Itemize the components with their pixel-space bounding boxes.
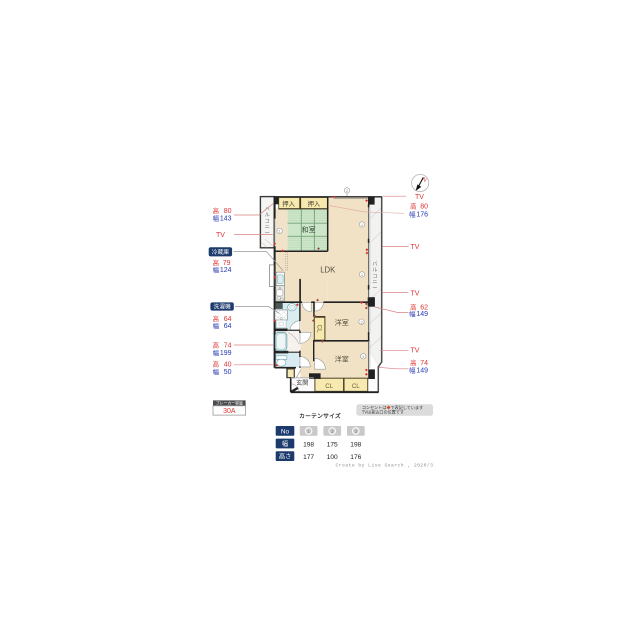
svg-text:176: 176 [416,212,428,219]
svg-text:幅: 幅 [409,366,416,375]
svg-text:TV: TV [415,194,424,201]
svg-text:TV: TV [411,348,420,355]
svg-text:幅: 幅 [409,210,416,219]
svg-text:高: 高 [213,206,219,215]
svg-text:高: 高 [213,360,219,369]
svg-text:玄関: 玄関 [296,379,308,387]
svg-text:TV: TV [411,290,420,297]
svg-text:高さ: 高さ [279,453,291,461]
svg-text:Create by Live Search , 2020/3: Create by Live Search , 2020/3 [336,463,434,469]
svg-text:1: 1 [307,429,310,435]
svg-text:和室: 和室 [302,225,316,234]
svg-text:ニ: ニ [372,279,377,286]
svg-text:TV: TV [411,244,420,251]
svg-text:押入: 押入 [282,199,295,208]
svg-text:幅: 幅 [213,321,220,330]
svg-text:ブレーカー容量: ブレーカー容量 [216,401,243,406]
svg-text:幅: 幅 [409,309,416,318]
svg-text:高: 高 [213,314,219,323]
svg-text:幅: 幅 [213,214,220,223]
svg-text:79: 79 [223,260,231,267]
svg-text:74: 74 [224,343,232,350]
svg-text:LDK: LDK [320,266,336,275]
svg-text:バ: バ [372,261,377,268]
svg-text:2: 2 [331,429,334,435]
svg-text:幅: 幅 [282,440,288,448]
svg-text:洋室: 洋室 [335,354,349,363]
svg-text:199: 199 [220,350,232,357]
svg-text:幅: 幅 [213,265,220,274]
svg-text:64: 64 [224,316,232,323]
svg-text:3: 3 [354,429,357,435]
svg-text:幅: 幅 [213,367,220,376]
svg-text:高: 高 [410,302,416,311]
svg-text:124: 124 [220,267,232,274]
svg-text:高: 高 [213,341,219,350]
svg-text:幅: 幅 [213,348,220,357]
svg-text:洋室: 洋室 [335,318,349,327]
svg-text:ー: ー [372,286,377,292]
svg-text:No: No [281,428,290,435]
svg-text:TVは差込口の位置です: TVは差込口の位置です [362,409,404,415]
svg-text:高: 高 [410,358,416,367]
svg-text:ニ: ニ [265,224,270,231]
svg-text:176: 176 [350,454,361,461]
svg-text:コ: コ [265,218,270,225]
svg-text:143: 143 [220,216,232,223]
svg-text:押入: 押入 [308,199,321,208]
svg-text:CL: CL [325,383,333,390]
svg-text:40: 40 [224,362,232,369]
svg-text:80: 80 [420,204,428,211]
svg-text:50: 50 [224,369,232,376]
svg-text:100: 100 [327,454,338,461]
svg-text:TV: TV [216,232,225,239]
svg-text:175: 175 [327,441,338,448]
svg-text:ー: ー [265,231,270,237]
svg-text:冷蔵庫: 冷蔵庫 [212,248,230,256]
svg-text:198: 198 [303,441,314,448]
svg-text:洗濯機: 洗濯機 [213,303,231,311]
svg-text:CL: CL [316,325,323,334]
svg-text:74: 74 [420,360,428,367]
svg-text:80: 80 [224,208,232,215]
svg-text:高: 高 [213,258,219,267]
svg-text:高: 高 [410,202,416,211]
svg-text:カーテンサイズ: カーテンサイズ [299,412,341,420]
svg-text:149: 149 [416,311,428,318]
svg-text:64: 64 [224,323,232,330]
svg-text:198: 198 [350,441,361,448]
svg-text:CL: CL [352,383,360,390]
svg-text:30A: 30A [223,408,236,415]
svg-text:コ: コ [372,273,377,280]
svg-text:149: 149 [416,368,428,375]
svg-text:177: 177 [303,454,314,461]
